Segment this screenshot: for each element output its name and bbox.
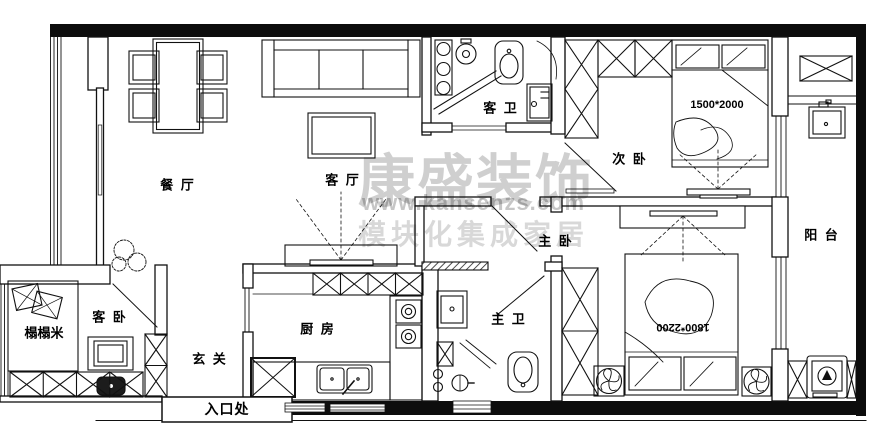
hatched-threshold (422, 262, 488, 270)
dining-table-set (129, 39, 227, 133)
room-label-second-bedroom: 次 卧 (612, 149, 648, 168)
hallway-closet (145, 334, 167, 397)
room-label-guest-bath: 客 卫 (483, 98, 519, 117)
kitchen-cabinets (253, 273, 423, 295)
plant (112, 240, 146, 271)
bed-size-master-bedroom: 1800*2200 (656, 321, 709, 333)
kitchen-sliding-door (245, 288, 249, 332)
room-label-kitchen: 厨 房 (300, 319, 336, 338)
room-label-master-bedroom: 主 卧 (538, 231, 574, 250)
room-label-guest-bedroom: 客 卧 (92, 307, 128, 326)
coffee-table (308, 113, 375, 158)
tv-cabinet-living (285, 192, 397, 266)
wardrobe-second-bedroom (565, 40, 672, 138)
bed-size-second-bedroom: 1500*2000 (690, 99, 743, 111)
floor-plan-drawing (0, 0, 873, 426)
master-bath-fixtures (434, 291, 539, 392)
room-label-living: 客 厅 (325, 170, 361, 189)
room-label-dining: 餐 厅 (160, 175, 196, 194)
balcony-cabinet (800, 56, 852, 81)
room-label-tatami: 榻榻米 (24, 323, 63, 342)
kitchen-counter-stove (390, 296, 422, 400)
guest-bedroom-desk (88, 337, 133, 370)
wardrobe-master-bedroom (562, 268, 598, 395)
bedside-fans (594, 366, 771, 396)
washing-machine (788, 356, 856, 398)
floor-plan-page: 康盛装饰 www.kansenzs.com 模块化集成家居 餐 厅 客 厅 客 … (0, 0, 873, 426)
room-label-entrance: 入口处 (205, 399, 250, 419)
room-label-hallway: 玄 关 (192, 349, 228, 368)
door-leaves (113, 126, 616, 327)
sofa (262, 40, 420, 97)
fridge (251, 358, 295, 397)
balcony-sink (788, 96, 856, 138)
room-label-balcony: 阳 台 (804, 225, 840, 244)
kitchen-sink-counter (253, 362, 390, 400)
room-label-master-bath: 主 卫 (491, 309, 527, 328)
